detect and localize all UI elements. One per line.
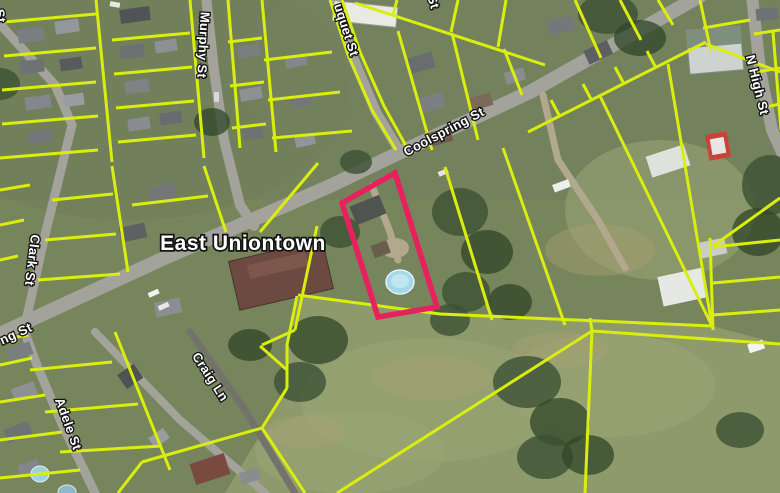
- place-label-east-uniontown: East Uniontown: [160, 232, 326, 255]
- map-canvas[interactable]: Murphy St uquet St Coolspring St N High …: [0, 0, 780, 493]
- map-viewport[interactable]: Murphy St uquet St Coolspring St N High …: [0, 0, 780, 493]
- pool-water: [391, 274, 409, 288]
